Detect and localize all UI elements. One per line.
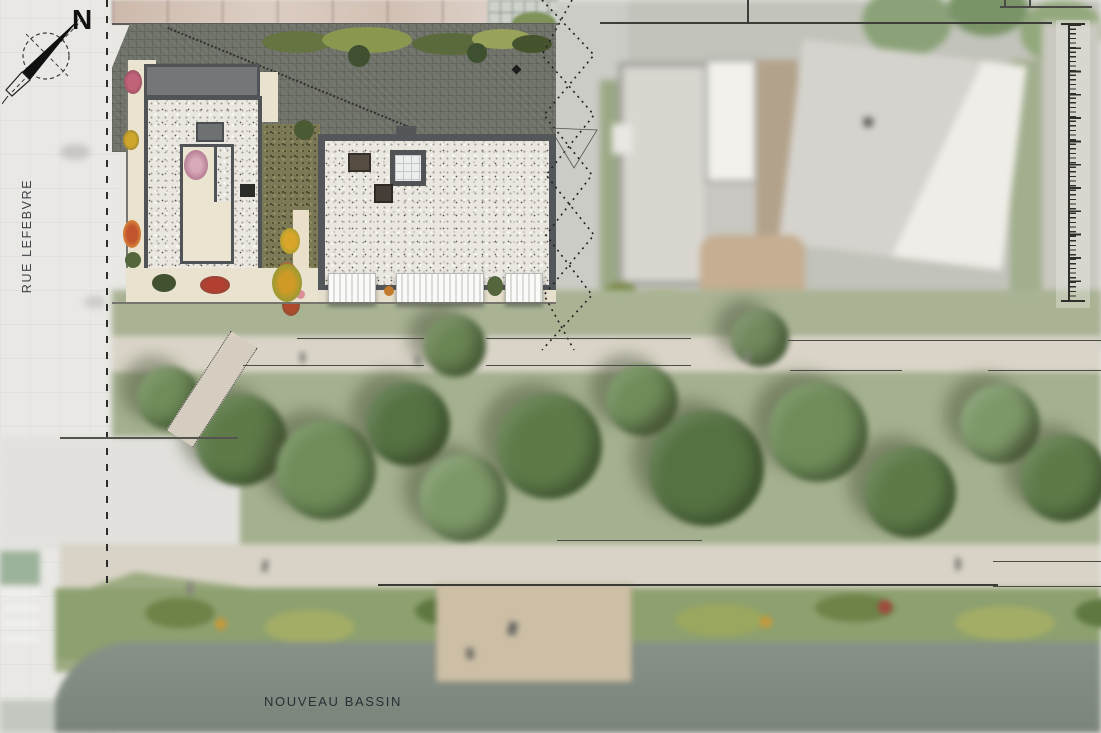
flowering-tree [184,150,208,180]
survey-line-top-right [1000,6,1092,8]
site-plan-canvas: N RUE LEFEBVRE NOUVEAU BASSIN [0,0,1101,733]
bush-round [152,274,176,292]
bush-round [294,120,314,140]
flower-box-green [125,252,141,268]
path-edge-line [993,586,1101,587]
roof-skylight [390,150,426,186]
awning [328,273,376,304]
ruler-cap-bottom [1061,300,1085,302]
neighbor-facade-north [112,0,488,24]
path-edge-line [788,340,1101,341]
street-name-label: RUE LEFEBVRE [20,171,36,301]
facade-mullions [112,0,488,24]
shrub-strip-north [262,27,554,57]
path-edge-line [486,338,691,339]
survey-tick [1029,0,1031,7]
flower-box-yellow [123,130,139,150]
site-south-edge-line [112,302,556,304]
roof-hatch [374,184,393,203]
roof-hatch [348,153,371,172]
path-edge-line [988,370,1101,371]
survey-line-top [600,22,1052,24]
ruler-cap-top [1061,23,1085,25]
flower-box-orange [123,220,141,248]
flower-red [200,276,230,294]
awning [396,273,484,304]
courtyard-gravel-patch [214,147,231,202]
path-edge-line [297,338,424,339]
bush-round [467,43,487,63]
flower-box-pink [124,70,142,94]
sidewalk-edge-line [60,437,238,439]
bush-round [487,276,503,296]
path-edge-line [557,540,702,541]
compass [2,8,112,118]
boundary-zigzag-marking [534,0,608,352]
ruler-major-ticks [1070,24,1081,302]
path-edge-line [993,561,1101,562]
flower-planter [272,264,302,302]
bush-round [348,45,370,67]
water-name-label: NOUVEAU BASSIN [264,694,402,709]
path-edge-line [486,365,691,366]
roof-vent [240,184,255,197]
quay-edge-line [378,584,998,586]
path-edge-line [243,365,424,366]
building-left-north-roof [144,64,260,98]
path-edge-line [790,370,902,371]
survey-tick [1004,0,1006,7]
flower-orange [384,286,394,296]
survey-line-vertical [747,0,749,23]
flower-yellow [280,228,300,254]
roof-chimney [196,122,224,142]
shrub [262,31,332,53]
compass-north-label: N [72,4,92,36]
